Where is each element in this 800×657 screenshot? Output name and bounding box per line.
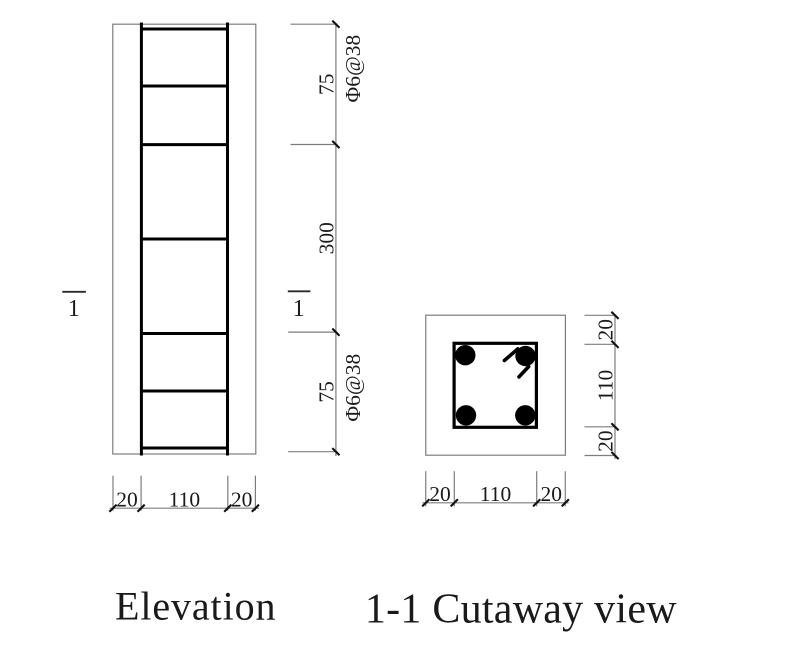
svg-text:1: 1 (68, 296, 80, 322)
svg-text:20: 20 (594, 430, 618, 452)
svg-text:1: 1 (293, 296, 305, 322)
svg-text:20: 20 (541, 482, 563, 506)
svg-text:300: 300 (315, 222, 339, 254)
svg-text:75: 75 (315, 74, 339, 96)
svg-text:20: 20 (594, 319, 618, 341)
svg-text:75: 75 (315, 381, 339, 403)
svg-text:1-1 Cutaway view: 1-1 Cutaway view (365, 587, 677, 633)
svg-text:Φ6@38: Φ6@38 (341, 354, 365, 422)
svg-text:110: 110 (169, 488, 200, 512)
svg-text:110: 110 (480, 482, 511, 506)
svg-text:Elevation: Elevation (115, 584, 276, 629)
svg-text:110: 110 (594, 370, 618, 401)
svg-text:20: 20 (429, 482, 451, 506)
svg-text:20: 20 (231, 488, 253, 512)
svg-text:20: 20 (116, 488, 138, 512)
svg-text:Φ6@38: Φ6@38 (341, 35, 365, 103)
